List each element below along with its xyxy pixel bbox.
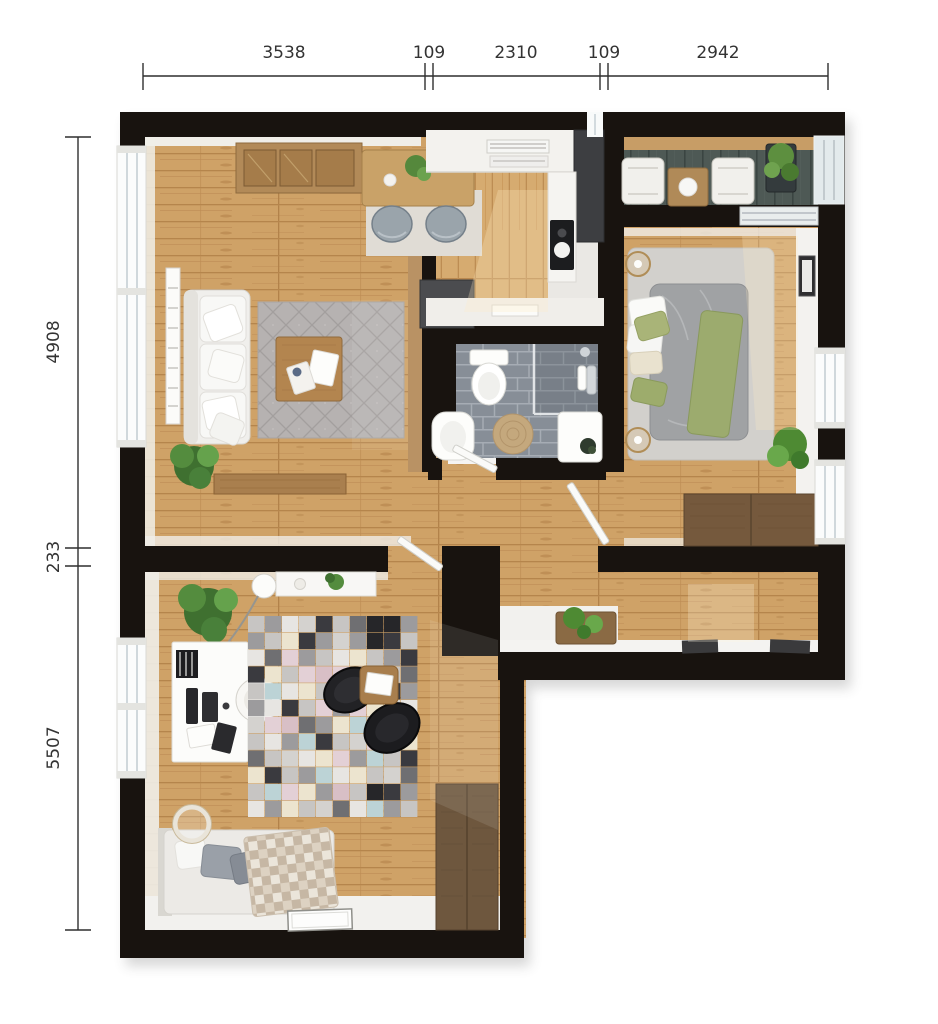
bedside-lamp: [626, 252, 650, 276]
shower-panel: [587, 366, 596, 394]
dim-label: 109: [588, 43, 620, 63]
bath-sink: [578, 366, 586, 390]
wall-face: [145, 536, 411, 546]
ac-vent: [487, 140, 549, 167]
balcony-plant: [764, 143, 799, 192]
wall-face: [624, 228, 796, 236]
kitchen-counter-right: [548, 172, 576, 282]
mouse: [223, 703, 230, 710]
keyboard: [202, 692, 218, 722]
dimension-left: [65, 137, 91, 930]
wall-face: [145, 572, 159, 930]
dim-label: 3538: [262, 43, 305, 63]
toilet: [470, 350, 508, 405]
side-table: [360, 666, 398, 704]
dim-label: 2942: [696, 43, 739, 63]
pillow-cream: [629, 351, 662, 375]
office-doormat: [288, 909, 353, 931]
top-wall-window: [587, 112, 603, 137]
wall-bedroom-bottom: [598, 546, 820, 572]
dim-label: 5507: [44, 726, 64, 769]
office-shelf: [276, 572, 376, 596]
living-window: [117, 146, 146, 447]
dim-label: 233: [44, 541, 64, 573]
bedroom-window: [815, 348, 845, 428]
plaid-blanket: [243, 827, 338, 917]
balcony-chair: [712, 158, 754, 204]
washing-machine: [558, 412, 602, 462]
dimension-top: [143, 63, 828, 90]
sink: [554, 242, 570, 258]
wall-office-right: [500, 680, 524, 958]
sofa: [184, 290, 250, 447]
floor-plan-image: 3538 109 2310 109 2942 4908 233 5507: [0, 0, 938, 1024]
wall-office-bottom: [120, 930, 524, 958]
kitchen-tall-cabinet: [574, 130, 604, 242]
dim-label: 109: [413, 43, 445, 63]
shower-head: [580, 347, 590, 357]
coffee-table: [276, 337, 342, 401]
balcony-chair: [622, 158, 664, 204]
balcony-table: [668, 168, 708, 206]
floor-plan-svg: 3538 109 2310 109 2942 4908 233 5507: [0, 0, 938, 1024]
radiator: [166, 268, 180, 424]
decor: [293, 368, 302, 377]
office-window: [117, 638, 146, 778]
dimension-left-labels: 4908 233 5507: [44, 320, 64, 769]
plate: [384, 174, 396, 186]
midi-keyboard: [176, 650, 198, 678]
dim-label: 2310: [494, 43, 537, 63]
wall-hall-bottom: [498, 652, 845, 680]
bedside-lamp: [626, 428, 650, 452]
wall-bath-bottom: [428, 458, 442, 480]
wall-picture-frame: [799, 256, 815, 296]
bench: [214, 474, 346, 494]
dim-label: 4908: [44, 320, 64, 363]
bath-rug: [493, 414, 533, 454]
balcony-sliding-door: [740, 207, 818, 225]
round-mirror: [173, 805, 212, 844]
wall-bath-top: [428, 326, 606, 344]
hall-planter-bench: [556, 607, 616, 644]
wall-office-top: [442, 546, 500, 572]
wall-office-top: [120, 546, 388, 572]
sideboard: [236, 143, 362, 193]
doormat: [770, 639, 810, 653]
shelf-bowl: [295, 579, 306, 590]
bedroom-window: [815, 460, 845, 544]
bedroom-wardrobe: [684, 494, 818, 546]
monitor: [186, 688, 198, 724]
balcony-window: [814, 136, 844, 204]
dimension-top-labels: 3538 109 2310 109 2942: [262, 43, 739, 63]
